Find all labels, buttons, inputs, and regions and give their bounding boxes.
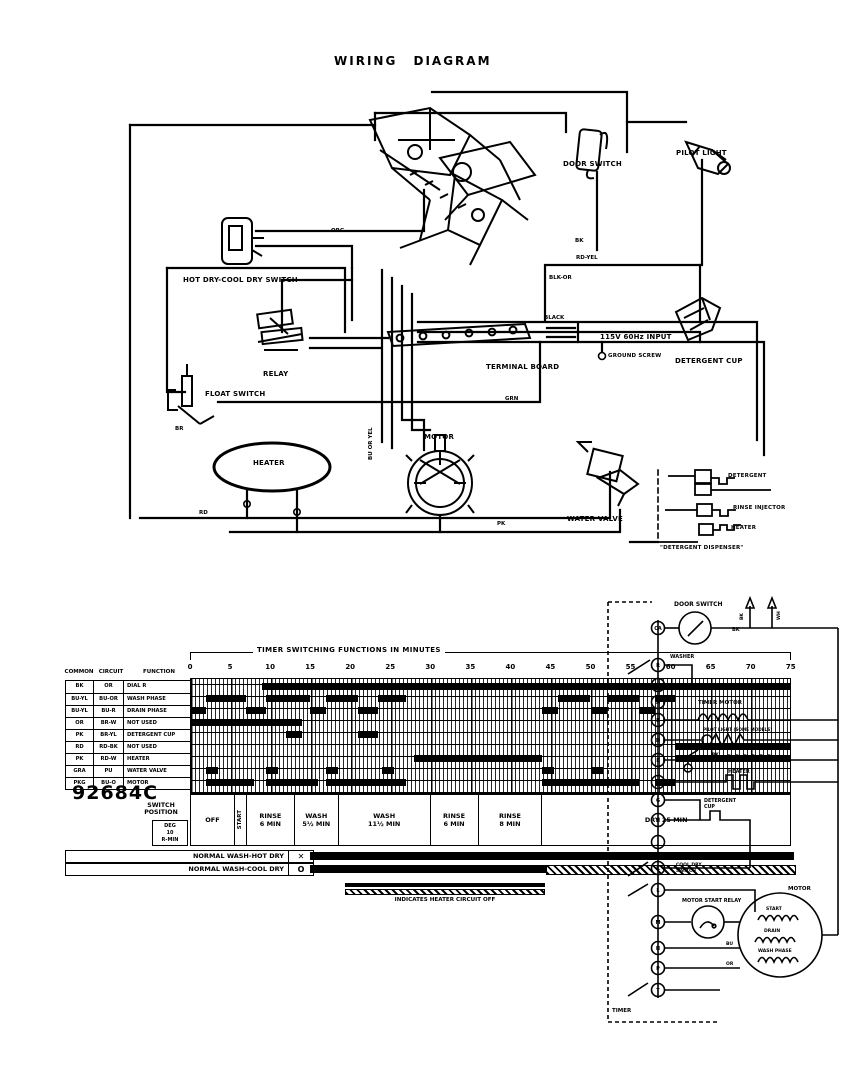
schematic-diagram: CARCABDEFGHJKLMNPT DOOR SWITCH BK BK WH … xyxy=(600,590,848,1030)
water-valve-drawing xyxy=(578,442,638,506)
line1-label: BK xyxy=(739,613,745,620)
timer-motor-label: TIMER MOTOR xyxy=(698,700,743,706)
sub-label-line: R-MIN xyxy=(153,837,187,844)
page-title: WIRING DIAGRAM xyxy=(334,54,492,68)
timer-bar xyxy=(310,707,326,714)
timer-bar xyxy=(542,767,554,774)
terminal-letter: H xyxy=(656,818,660,824)
timer-bar xyxy=(358,731,378,738)
winding-start-label: START xyxy=(766,906,783,912)
motor-label: MOTOR xyxy=(424,433,454,441)
timer-bar xyxy=(246,707,266,714)
table-row: BU-YLBU-ORWASH PHASE xyxy=(66,693,190,705)
terminal-letter: J xyxy=(656,840,659,846)
terminal-letter: T xyxy=(656,988,660,994)
heater-label: HEATER xyxy=(728,769,750,775)
function-cell: DRAIN PHASE xyxy=(124,706,190,717)
circuit-cell: RD-W xyxy=(94,754,124,765)
hot-dry-label-2: COOL DRY xyxy=(676,862,702,868)
sub-label-line: DEG xyxy=(153,823,187,830)
circuit-cell: RD-BK xyxy=(94,742,124,753)
terminal-letter: CA xyxy=(654,626,662,632)
schematic-labels: DOOR SWITCH BK BK WH WASHER TIMER MOTOR … xyxy=(612,601,812,1014)
phase-label: WASH xyxy=(305,812,327,820)
sub-label-line: 10 xyxy=(153,830,187,837)
phase-label-2: 6 MIN xyxy=(260,820,281,828)
phase-label: RINSE xyxy=(499,812,521,820)
axis-tick: 25 xyxy=(385,663,395,671)
timer-bar xyxy=(358,707,378,714)
wire-runs xyxy=(130,92,764,542)
timer-bar xyxy=(378,695,406,702)
phase-label: OFF xyxy=(205,816,219,824)
line2-label: WH xyxy=(776,611,782,620)
table-row: RDRD-BKNOT USED xyxy=(66,741,190,753)
pilot-light-drawing xyxy=(686,142,730,174)
wire-color-label: GRN xyxy=(505,396,518,402)
timer-bar xyxy=(326,695,358,702)
circuit-cell: BR-W xyxy=(94,718,124,729)
water-valve-label: WATER VALVE xyxy=(567,515,623,523)
circuit-cell: OR xyxy=(94,681,124,693)
common-cell: GRA xyxy=(66,766,94,777)
timer-bar xyxy=(190,719,302,726)
wire-color-label: PK xyxy=(497,521,505,527)
cycle-label: NORMAL WASH-COOL DRY xyxy=(65,863,289,876)
function-cell: NOT USED xyxy=(124,718,190,729)
motor-start-relay-label: MOTOR START RELAY xyxy=(682,898,742,904)
table-row: BU-YLBU-RDRAIN PHASE xyxy=(66,705,190,717)
washer-contact-label: WASHER xyxy=(670,654,694,660)
wire-color-label: BU OR YEL xyxy=(368,427,374,460)
function-cell: NOT USED xyxy=(124,742,190,753)
scanned-wiring-diagram-page: WIRING DIAGRAM xyxy=(0,0,848,1068)
phase-label: RINSE xyxy=(259,812,281,820)
timer-label: TIMER xyxy=(612,1008,632,1014)
terminal-letter: E xyxy=(656,758,660,764)
winding-wash-label: WASH PHASE xyxy=(758,948,792,954)
inset-rinse-injector-label: RINSE INJECTOR xyxy=(733,505,785,511)
wire-color-label: ORG xyxy=(331,228,344,234)
heater-drawing xyxy=(214,443,330,491)
axis-tick: 0 xyxy=(188,663,193,671)
timer-bar xyxy=(326,767,338,774)
terminal-board-label: TERMINAL BOARD xyxy=(486,363,559,371)
terminal-letter: P xyxy=(656,966,660,972)
function-cell: HEATER xyxy=(124,754,190,765)
float-switch-label: FLOAT SWITCH xyxy=(205,390,265,398)
detergent-cup-label-1: DETERGENT xyxy=(704,798,737,804)
switch-position-line1: SWITCH xyxy=(134,802,188,809)
inset-caption: "DETERGENT DISPENSER" xyxy=(660,545,743,551)
common-cell: OR xyxy=(66,718,94,729)
function-cell: WASH PHASE xyxy=(124,694,190,705)
table-row: PKRD-WHEATER xyxy=(66,753,190,765)
hot-dry-label-1: HOT DRY- xyxy=(676,856,700,862)
axis-tick: 45 xyxy=(546,663,556,671)
axis-tick: 30 xyxy=(425,663,435,671)
schematic-door-switch-label: DOOR SWITCH xyxy=(674,601,723,608)
timer-assembly-drawing xyxy=(370,108,535,265)
relay-drawing xyxy=(257,310,302,350)
common-cell: BK xyxy=(66,681,94,693)
axis-tick: 50 xyxy=(586,663,596,671)
ground-screw-label: GROUND SCREW xyxy=(608,353,661,359)
circuit-cell: BR-YL xyxy=(94,730,124,741)
col-header-common: COMMON xyxy=(64,669,94,675)
wire-color-label: RD-YEL xyxy=(576,255,598,261)
common-cell: PK xyxy=(66,730,94,741)
phase-label: RINSE xyxy=(443,812,465,820)
axis-tick: 15 xyxy=(305,663,315,671)
pilot-light-label: PILOT LIGHT (SOME MODELS) xyxy=(703,727,772,732)
circuit-cell: PU xyxy=(94,766,124,777)
timer-bar xyxy=(266,767,278,774)
legend-hatched-bar xyxy=(345,889,545,895)
col-header-circuit: CIRCUIT xyxy=(95,669,127,675)
cycle-label: NORMAL WASH-HOT DRY xyxy=(65,850,289,863)
wire-bk-label: BK xyxy=(732,627,741,633)
inset-detergent-label: DETERGENT xyxy=(728,473,767,479)
table-row: PKBR-YLDETERGENT CUP xyxy=(66,729,190,741)
common-cell: BU-YL xyxy=(66,694,94,705)
table-row: BKORDIAL R xyxy=(66,681,190,693)
door-switch-label: DOOR SWITCH xyxy=(563,160,622,168)
switch-position-label: SWITCH POSITION xyxy=(134,802,188,816)
timer-bar xyxy=(542,707,558,714)
switch-sub-box: DEG10R-MIN xyxy=(152,820,188,846)
common-cell: PK xyxy=(66,754,94,765)
cycle-row: NORMAL WASH-COOL DRYO xyxy=(65,863,314,876)
function-cell: DETERGENT CUP xyxy=(124,730,190,741)
circuit-cell: BU-OR xyxy=(94,694,124,705)
terminal-letter: K xyxy=(656,866,661,872)
wire-color-label: BLK-OR xyxy=(549,275,572,281)
terminal-letter: F xyxy=(656,780,659,786)
motor-label: MOTOR xyxy=(788,886,812,892)
winding-drain-label: DRAIN xyxy=(764,928,780,934)
phase-box: WASH5½ MIN xyxy=(295,795,339,845)
axis-tick: 10 xyxy=(265,663,275,671)
cycle-row: NORMAL WASH-HOT DRY✕ xyxy=(65,850,314,863)
common-cell: RD xyxy=(66,742,94,753)
phase-label: START xyxy=(236,810,244,829)
switch-position-line2: POSITION xyxy=(134,809,188,816)
phase-box: START xyxy=(235,795,247,845)
float-switch-label: FLOAT SWITCH xyxy=(676,743,716,749)
phase-box: RINSE8 MIN xyxy=(479,795,543,845)
phase-label-2: 11½ MIN xyxy=(368,820,400,828)
timer-bar xyxy=(382,767,394,774)
function-cell: WATER VALVE xyxy=(124,766,190,777)
timer-bar xyxy=(414,755,542,762)
door-switch-drawing xyxy=(576,129,607,178)
input-label: 115V 60Hz INPUT xyxy=(600,333,672,341)
schematic-wires xyxy=(608,598,838,1022)
wire-color-label: RD xyxy=(199,510,208,516)
wire-or-label: OR xyxy=(726,961,734,967)
wire-color-label: BLACK xyxy=(544,315,564,321)
timer-bar xyxy=(266,695,310,702)
axis-tick: 5 xyxy=(228,663,233,671)
hot-dry-switch-drawing xyxy=(222,218,264,264)
chart-title: TIMER SWITCHING FUNCTIONS IN MINUTES xyxy=(253,646,445,654)
phase-box: WASH11½ MIN xyxy=(339,795,431,845)
axis-tick: 35 xyxy=(465,663,475,671)
hot-dry-switch-label: HOT DRY-COOL DRY SWITCH xyxy=(183,276,298,284)
wire-color-label: BR xyxy=(175,426,183,432)
detergent-cup-drawing xyxy=(676,298,720,340)
legend-solid-bar xyxy=(345,883,545,887)
col-header-function: FUNCTION xyxy=(130,669,188,675)
phase-box: RINSE6 MIN xyxy=(431,795,479,845)
inset-heater-label: HEATER xyxy=(731,525,756,531)
terminal-letter: C xyxy=(656,683,660,689)
water-valve-label: WATER VALVE xyxy=(734,744,771,750)
timer-bar xyxy=(558,695,590,702)
phase-label: WASH xyxy=(373,812,395,820)
timer-bar xyxy=(190,707,206,714)
pilot-light-label: PILOT LIGHT xyxy=(676,149,727,157)
wire-color-label: BK xyxy=(575,238,583,244)
wire-bu-label: BU xyxy=(726,941,733,947)
timer-bar xyxy=(206,695,246,702)
cycle-solid-bar xyxy=(310,865,546,873)
phase-label-2: 6 MIN xyxy=(443,820,464,828)
function-table: BKORDIAL RBU-YLBU-ORWASH PHASEBU-YLBU-RD… xyxy=(65,680,191,790)
wire-pk-label: PK xyxy=(712,752,719,758)
terminal-letter: M xyxy=(656,920,661,926)
motor-drawing xyxy=(406,435,474,515)
terminal-letter: N xyxy=(656,946,660,952)
terminal-letter: R xyxy=(656,663,660,669)
terminal-letter: L xyxy=(656,888,660,894)
heater-label: HEATER xyxy=(253,459,285,467)
detergent-cup-label-2: CUP xyxy=(704,804,715,810)
axis-tick: 20 xyxy=(345,663,355,671)
timer-bar xyxy=(326,779,406,786)
hot-dry-label-3: SWITCH xyxy=(676,868,696,874)
detergent-cup-label: DETERGENT CUP xyxy=(675,357,743,365)
legend-caption: INDICATES HEATER CIRCUIT OFF xyxy=(345,897,545,903)
terminal-letter: G xyxy=(656,798,660,804)
timer-bar xyxy=(286,731,302,738)
terminal-letter: B xyxy=(656,718,660,724)
circuit-cell: BU-R xyxy=(94,706,124,717)
part-number: 92684C xyxy=(72,782,158,804)
axis-tick: 40 xyxy=(506,663,516,671)
table-row: ORBR-WNOT USED xyxy=(66,717,190,729)
phase-label-2: 5½ MIN xyxy=(302,820,330,828)
phase-box: OFF xyxy=(191,795,235,845)
relay-label: RELAY xyxy=(263,370,288,378)
table-row: GRAPUWATER VALVE xyxy=(66,765,190,777)
common-cell: BU-YL xyxy=(66,706,94,717)
function-cell: DIAL R xyxy=(124,681,190,693)
terminal-letter: D xyxy=(656,738,660,744)
timer-bar xyxy=(266,779,318,786)
timer-bar xyxy=(206,779,254,786)
phase-label-2: 8 MIN xyxy=(499,820,520,828)
phase-box: RINSE6 MIN xyxy=(247,795,295,845)
timer-bar xyxy=(206,767,218,774)
terminal-letter: A xyxy=(656,700,660,706)
